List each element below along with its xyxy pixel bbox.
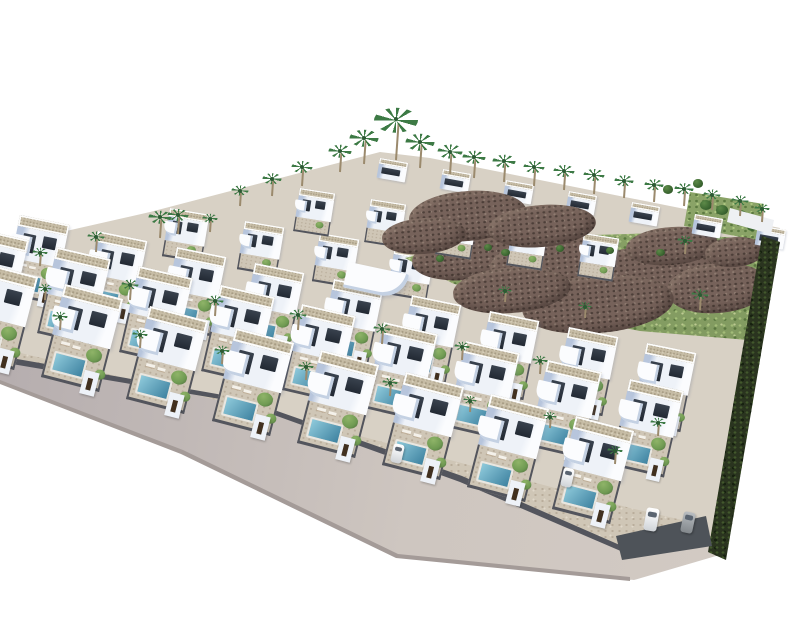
garden-tree [600, 266, 609, 274]
parked-car [643, 507, 660, 532]
palm-crown-center [738, 199, 742, 203]
palm-tree [678, 238, 693, 254]
palm-tree [292, 164, 313, 186]
villa-balcony [578, 244, 592, 258]
villa-balcony [313, 246, 328, 261]
villa-window [0, 252, 15, 268]
palm-tree [584, 172, 605, 194]
palm-tree [122, 282, 139, 300]
villa-window [261, 235, 273, 246]
palm-tree [39, 286, 52, 300]
sun-lounger [413, 433, 421, 438]
gate-door [85, 378, 93, 391]
sun-lounger [317, 407, 326, 412]
palm-crown-center [296, 313, 300, 317]
swimming-pool [220, 395, 258, 424]
palm-tree [215, 348, 230, 364]
sun-lounger [146, 363, 155, 368]
palm-tree [704, 192, 721, 210]
palm-crown-center [710, 193, 714, 197]
palm-tree [608, 448, 623, 464]
villa-window [259, 355, 278, 373]
villa-window [386, 212, 397, 221]
garden-tree [85, 347, 104, 365]
villa-balcony [365, 211, 379, 225]
palm-crown-center [362, 136, 366, 140]
palm-tree [651, 420, 666, 436]
palm-crown-center [38, 251, 42, 255]
palm-tree [383, 380, 398, 396]
villa-window [198, 268, 214, 282]
gate-door [651, 465, 658, 477]
palm-tree [290, 312, 307, 330]
sun-lounger [498, 455, 506, 460]
palm-tree [350, 134, 379, 164]
palm-tree [88, 234, 105, 252]
villa-window [80, 271, 97, 287]
palm-crown-center [683, 239, 687, 243]
palm-crown-center [682, 187, 686, 191]
car-windshield [564, 470, 572, 476]
villa-window [653, 403, 670, 419]
palm-crown-center [304, 365, 308, 369]
palm-crown-center [622, 179, 626, 183]
palm-crown-center [548, 415, 552, 419]
palm-crown-center [213, 299, 217, 303]
shrub [656, 249, 665, 257]
gate-door [120, 309, 126, 320]
palm-tree [374, 326, 391, 344]
villa-window [515, 421, 534, 439]
villa-window [174, 333, 193, 351]
sun-lounger [300, 356, 309, 361]
villa-window [277, 284, 293, 298]
villa-window [444, 178, 463, 187]
palm-tree [493, 158, 516, 182]
palm-tree [406, 138, 435, 168]
palm-tree [692, 292, 709, 310]
gate-door [0, 356, 8, 369]
palm-crown-center [652, 183, 656, 187]
sun-lounger [29, 266, 36, 270]
shrub [663, 185, 673, 194]
villa-window [120, 252, 136, 266]
palm-crown-center [468, 399, 472, 403]
sun-lounger [231, 385, 240, 390]
parked-car [680, 511, 696, 534]
shrub [556, 245, 564, 252]
villa-window [355, 300, 371, 314]
garden-tree [596, 479, 615, 497]
villa-window [512, 332, 528, 346]
palm-tree [299, 364, 314, 380]
villa-window [571, 384, 588, 400]
palm-tree [755, 206, 770, 222]
sun-lounger [61, 341, 70, 346]
garden-tree [315, 221, 324, 229]
palm-tree [33, 250, 48, 266]
palm-tree [263, 176, 282, 196]
palm-tree [499, 288, 512, 302]
palm-crown-center [208, 217, 212, 221]
palm-crown-center [503, 289, 507, 293]
villa-window [434, 316, 450, 330]
villa-window [89, 311, 108, 329]
car-windshield [647, 511, 657, 518]
palm-crown-center [380, 327, 384, 331]
palm-crown-center [502, 159, 506, 163]
villa-window [696, 223, 715, 232]
palm-crown-center [613, 449, 617, 453]
villa-balcony [452, 361, 479, 387]
palm-crown-center [43, 287, 47, 291]
palm-tree [203, 216, 218, 232]
palm-crown-center [158, 215, 162, 219]
garden-tree [0, 325, 19, 343]
garden-tree [170, 369, 189, 387]
gate-door [341, 444, 349, 457]
garden-tree [528, 255, 537, 263]
gate-door [171, 400, 179, 413]
palm-tree [168, 212, 189, 234]
palm-tree [464, 398, 477, 412]
palm-tree [232, 188, 249, 206]
gate-door [426, 466, 434, 479]
palm-tree [207, 298, 224, 316]
swimming-pool [306, 417, 344, 446]
villa-window [430, 399, 449, 417]
villa-window [243, 309, 260, 325]
palm-tree [675, 186, 694, 206]
garden-tree [275, 314, 291, 328]
palm-crown-center [128, 283, 132, 287]
sun-lounger [556, 416, 564, 420]
car-windshield [684, 515, 693, 521]
shrub [693, 179, 703, 188]
palm-crown-center [394, 117, 398, 121]
shrub [606, 247, 614, 254]
palm-crown-center [176, 213, 180, 217]
shrub [436, 255, 444, 262]
gate-door [512, 388, 518, 399]
villa-building [692, 214, 724, 238]
palm-crown-center [388, 381, 392, 385]
sun-lounger [243, 389, 251, 394]
palm-crown-center [583, 305, 587, 309]
sun-lounger [72, 345, 80, 350]
palm-crown-center [270, 177, 274, 181]
palm-tree [554, 168, 575, 190]
villa-window [381, 167, 400, 176]
palm-tree [615, 178, 634, 198]
villa-window [590, 348, 606, 362]
villa-balcony [534, 380, 561, 406]
villa-window [4, 289, 23, 307]
sun-lounger [107, 282, 114, 286]
villa-roof [645, 343, 697, 364]
palm-tree [438, 148, 463, 174]
sun-lounger [487, 451, 496, 456]
palm-crown-center [94, 235, 98, 239]
sun-lounger [638, 435, 646, 439]
palm-crown-center [532, 165, 536, 169]
palm-tree [455, 344, 470, 360]
swimming-pool [476, 461, 514, 490]
palm-crown-center [472, 155, 476, 159]
palm-crown-center [538, 359, 542, 363]
entrance-gate [0, 348, 15, 375]
villa-window [407, 346, 424, 362]
villa-window [489, 365, 506, 381]
villa-window [325, 327, 342, 343]
villa-window [336, 247, 348, 258]
villa-balcony [294, 199, 308, 213]
palm-tree [732, 198, 749, 216]
palm-crown-center [448, 150, 452, 154]
shrub [484, 244, 492, 251]
sun-lounger [328, 411, 336, 416]
palm-crown-center [220, 349, 224, 353]
garden-tree [425, 435, 444, 453]
swimming-pool [50, 351, 88, 380]
palm-crown-center [300, 165, 304, 169]
palm-crown-center [656, 421, 660, 425]
gate-door [256, 422, 264, 435]
palm-crown-center [698, 293, 702, 297]
palm-tree [329, 148, 352, 172]
palm-crown-center [338, 149, 342, 153]
palm-tree [533, 358, 548, 374]
garden-tree [411, 283, 421, 292]
villa-window [315, 201, 326, 210]
palm-tree [463, 154, 486, 178]
palm-tree [544, 414, 557, 428]
car-windshield [394, 446, 402, 452]
gate-door [597, 510, 605, 523]
palm-crown-center [592, 173, 596, 177]
aerial-render-canvas [0, 0, 800, 640]
shrub [501, 249, 510, 257]
garden-tree [457, 244, 466, 252]
sun-lounger [158, 367, 166, 372]
palm-crown-center [58, 315, 62, 319]
sun-lounger [218, 337, 227, 342]
villa-balcony [238, 233, 253, 248]
villa-building [629, 202, 661, 226]
villa-window [633, 212, 652, 221]
palm-tree [579, 304, 592, 318]
palm-crown-center [418, 140, 422, 144]
palm-tree [53, 314, 68, 330]
villa-building [377, 158, 409, 182]
palm-tree [645, 182, 664, 202]
shrub [747, 222, 757, 231]
gate-door [511, 488, 519, 501]
garden-tree [511, 457, 530, 475]
villa-window [759, 234, 778, 243]
palm-tree [133, 332, 148, 348]
palm-crown-center [562, 169, 566, 173]
palm-tree [524, 164, 545, 186]
palm-crown-center [760, 207, 764, 211]
sun-lounger [402, 429, 411, 434]
sun-lounger [584, 477, 592, 482]
villa-balcony [616, 399, 643, 425]
sun-lounger [136, 318, 145, 323]
villa-window [161, 290, 178, 306]
palm-crown-center [460, 345, 464, 349]
villa-window [669, 364, 685, 378]
palm-crown-center [238, 189, 242, 193]
villa-building [755, 225, 787, 249]
palm-crown-center [138, 333, 142, 337]
villa-window [344, 377, 363, 395]
